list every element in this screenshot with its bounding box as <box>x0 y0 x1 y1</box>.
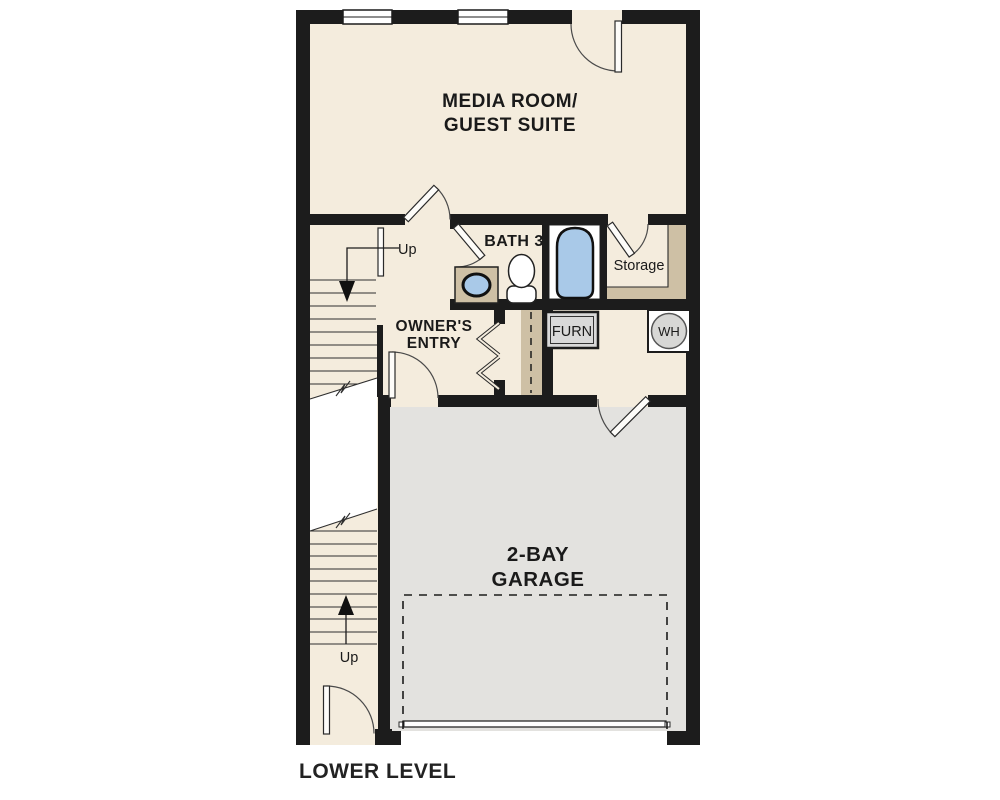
water-heater-label: WH <box>658 324 680 339</box>
sink-icon <box>455 267 498 303</box>
window-icon <box>343 10 392 24</box>
window-icon <box>458 10 508 24</box>
owners-entry-label-line2: ENTRY <box>407 335 462 352</box>
garage-label-line2: GARAGE <box>492 568 585 591</box>
toilet-icon <box>507 255 536 304</box>
stair-up-label-lower: Up <box>340 650 359 666</box>
storage-tan-bottom <box>606 287 688 300</box>
garage-overhead-door <box>399 721 670 727</box>
stair-void <box>310 378 377 531</box>
media-room-label-line1: MEDIA ROOM/ <box>442 91 578 112</box>
bath-label: BATH 3 <box>484 233 544 250</box>
page-title: LOWER LEVEL <box>299 760 456 783</box>
stair-up-label-upper: Up <box>398 242 417 258</box>
owners-entry-label-line1: OWNER'S <box>396 318 473 335</box>
bathtub-icon <box>557 228 593 298</box>
door-stair-hall <box>378 228 384 276</box>
garage-label-line1: 2-BAY <box>507 543 569 566</box>
media-room-label-line2: GUEST SUITE <box>444 115 576 136</box>
floor-plan-drawing: MEDIA ROOM/ GUEST SUITE BATH 3 Storage O… <box>0 0 1000 800</box>
storage-label: Storage <box>614 258 665 274</box>
furnace-label: FURN <box>552 324 592 340</box>
floor-plan-page: MEDIA ROOM/ GUEST SUITE BATH 3 Storage O… <box>0 0 1000 800</box>
